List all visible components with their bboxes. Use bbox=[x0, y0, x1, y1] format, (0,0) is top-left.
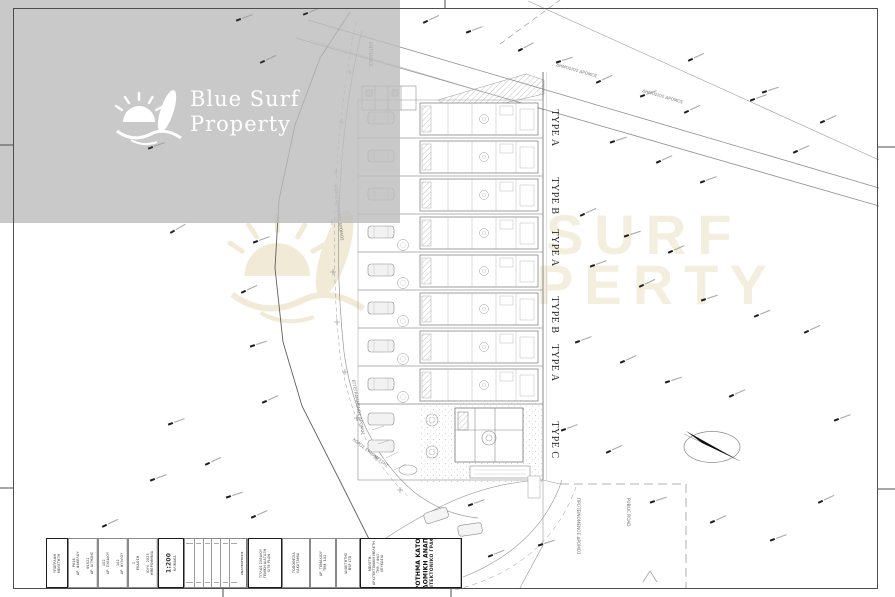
survey-mark bbox=[750, 94, 767, 102]
road-label: ΕΓΓΕΓΡΑΜΜΕΝΟΣ ΔΡΟΜΟΣ bbox=[351, 379, 366, 436]
title-block-revision-grid: ΑΝΑΘΕΩΡΗΣΕΙΣ bbox=[184, 538, 248, 588]
title-block-cell: ΙΔΙΟΚΤΗΤΗΣBSP LTD bbox=[336, 538, 360, 588]
survey-mark bbox=[226, 491, 243, 498]
survey-mark bbox=[466, 26, 483, 34]
type-label: TYPE A bbox=[549, 109, 560, 146]
communal-area bbox=[358, 400, 543, 482]
survey-mark bbox=[700, 176, 717, 184]
survey-mark bbox=[793, 145, 810, 154]
title-block-cell: ΤΟΠΟΘΕΣΙΑΛΑΚΑΤΑΜΙΑ bbox=[282, 538, 310, 588]
survey-mark bbox=[729, 389, 746, 398]
title-block-cell: ΤΙΤΛΟΣ ΣΧΕΔΙΟΥΓΕΝΙΚΗ ΔΙΑΤΑΞΗSITE PLAN bbox=[248, 538, 282, 588]
survey-mark bbox=[170, 223, 186, 233]
type-label: TYPE B bbox=[549, 296, 560, 333]
survey-mark bbox=[575, 336, 592, 344]
survey-mark bbox=[606, 445, 623, 454]
survey-mark bbox=[770, 534, 787, 542]
title-block-cell: 1:200ΚΛΙΜΑΚΑ bbox=[158, 538, 184, 588]
survey-mark bbox=[241, 285, 258, 294]
survey-mark bbox=[820, 115, 837, 124]
survey-mark bbox=[665, 376, 682, 383]
road-label: ΔΗΜΟΣΙΟΣ ΔΡΟΜΟΣ bbox=[642, 88, 684, 105]
drawing-sheet: SURF PERTY bbox=[0, 0, 895, 597]
survey-mark bbox=[804, 325, 821, 334]
road-label: ΔΗΜΟΣΙΟΣ ΔΡΟΜΟΣ bbox=[556, 62, 598, 79]
survey-mark bbox=[250, 340, 267, 347]
survey-mark bbox=[818, 495, 835, 504]
type-label: TYPE A bbox=[549, 229, 560, 266]
survey-mark bbox=[834, 414, 851, 422]
survey-mark bbox=[423, 15, 440, 24]
survey-mark bbox=[620, 355, 637, 364]
survey-mark bbox=[468, 499, 485, 507]
survey-mark bbox=[561, 424, 578, 432]
survey-mark bbox=[684, 105, 701, 114]
unit-row bbox=[358, 252, 543, 290]
survey-mark bbox=[150, 474, 167, 482]
boundary-arrow bbox=[643, 571, 657, 582]
site-plan-svg: SURF PERTY bbox=[0, 0, 895, 597]
survey-mark bbox=[168, 418, 185, 426]
survey-mark bbox=[556, 56, 573, 63]
unit-row bbox=[358, 366, 543, 404]
unit-row bbox=[358, 290, 543, 328]
survey-mark bbox=[688, 53, 705, 62]
survey-mark bbox=[762, 86, 779, 93]
title-block-cell: ΑΡ. ΤΕΜΑΧΙΟΥΤΕΜ. 102 bbox=[310, 538, 336, 588]
title-block-cell: ΥΠΟΓΡΑΦΗΜΕΛΕΤΗΤΗ bbox=[46, 538, 68, 588]
survey-mark bbox=[656, 155, 673, 164]
brand-logo-line2: Property bbox=[190, 112, 291, 136]
survey-mark bbox=[262, 395, 279, 404]
title-block: ΥΠΟΓΡΑΦΗΜΕΛΕΤΗΤΗΡ616ΑΡ. ΦΑΚΕΛΟΥΦ1822ΑΡ. … bbox=[46, 538, 463, 588]
survey-mark bbox=[596, 75, 613, 84]
survey-mark bbox=[205, 457, 222, 466]
title-block-cell: ΜΕΛΕΤΗ:ΑΡΧΙΤΕΚΤΟΝΙΚΗ ΜΕΛΕΤΗΤΗΛ. / ΦΑΞΛΕΥ… bbox=[360, 538, 462, 588]
survey-mark bbox=[650, 496, 667, 503]
survey-mark bbox=[251, 510, 268, 519]
road-label: ΠΡΟΤΕΙΝΟΜΕΝΟΣ ΔΡΟΜΟΣ bbox=[576, 498, 581, 555]
type-label: TYPE B bbox=[549, 177, 560, 214]
type-label: TYPE A bbox=[549, 344, 560, 381]
title-block-cell: 1ΕΚΔΟΣΗΙΟΥΛ. 2023ΗΜΕΡΟΜΗΝΙΑ bbox=[128, 538, 158, 588]
brand-logo-line1: Blue Surf bbox=[190, 87, 301, 111]
title-block-cell: 102ΑΡ. ΣΧΕΔΙΟΥ102ΑΡ. ΦΥΛΛΟΥ bbox=[98, 538, 128, 588]
survey-mark bbox=[518, 42, 534, 52]
survey-mark bbox=[538, 539, 555, 546]
survey-mark bbox=[710, 515, 727, 524]
road-label: PUBLIC ROAD bbox=[626, 498, 631, 527]
title-block-cell: Ρ616ΑΡ. ΦΑΚΕΛΟΥΦ1822ΑΡ. ΑΙΤΗΣΗΣ bbox=[68, 538, 98, 588]
brand-overlay: Blue Surf Property bbox=[0, 0, 400, 223]
north-arrow bbox=[684, 431, 740, 463]
survey-mark bbox=[610, 136, 627, 143]
type-label: TYPE C bbox=[549, 421, 560, 458]
survey-mark bbox=[102, 519, 119, 528]
unit-row bbox=[358, 328, 543, 366]
watermark-text-line2: PERTY bbox=[536, 253, 778, 316]
survey-mark bbox=[488, 549, 505, 557]
